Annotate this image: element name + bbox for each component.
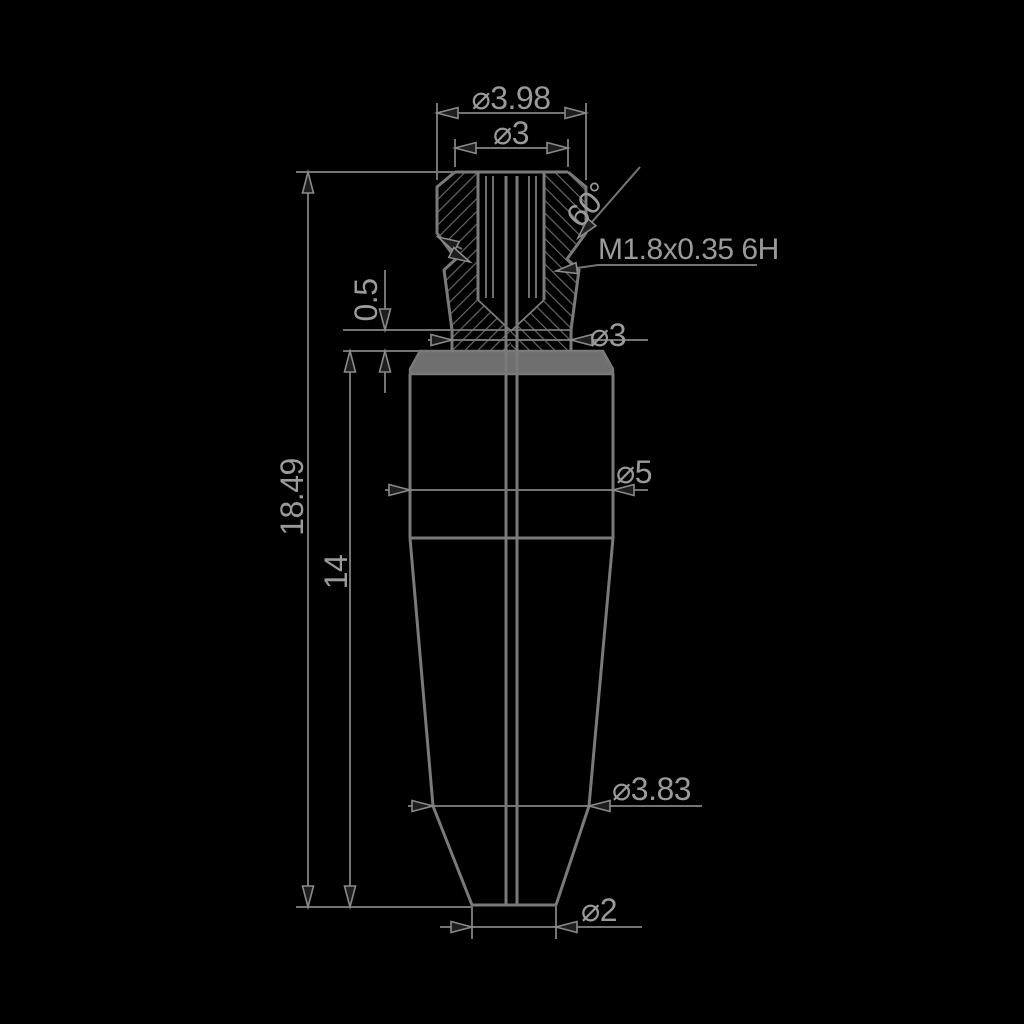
dim-label-cone-diameter: ⌀3.83 <box>612 771 691 807</box>
dim-label-thread-spec: M1.8x0.35 6H <box>598 233 779 266</box>
dim-label-body-diameter: ⌀5 <box>616 454 652 490</box>
arrowhead <box>412 801 433 812</box>
arrowhead <box>556 922 577 933</box>
cone-left-edge <box>433 806 472 905</box>
dim-thread-spec: M1.8x0.35 6H <box>555 233 779 276</box>
taper-left-edge <box>410 538 433 806</box>
dim-label-collar-thickness: 0.5 <box>348 279 384 322</box>
dim-label-top-outer-diameter: ⌀3.98 <box>471 80 550 116</box>
taper-right-edge <box>589 538 613 806</box>
arrowhead <box>565 108 586 119</box>
dim-label-overall-height: 18.49 <box>274 458 310 536</box>
arrowhead <box>431 335 452 346</box>
dim-body-height: 14 <box>318 351 356 907</box>
flange <box>410 351 613 374</box>
part-head-section <box>437 172 586 351</box>
dim-label-neck-diameter: ⌀3 <box>590 317 626 353</box>
arrowhead <box>303 172 314 193</box>
arrowhead <box>345 886 356 907</box>
arrowhead <box>589 801 610 812</box>
dim-cone-diameter: ⌀3.83 <box>408 771 702 812</box>
arrowhead <box>547 143 568 154</box>
arrowhead <box>437 108 458 119</box>
cone-right-edge <box>556 806 589 905</box>
arrowhead <box>303 886 314 907</box>
arrowhead <box>451 922 472 933</box>
nozzle-section-drawing: ⌀3.98 ⌀3 60° M1.8x0.35 6H 0.5 <box>0 0 1024 1024</box>
thread-bore-cavity <box>478 172 544 331</box>
arrowhead <box>571 335 592 346</box>
technical-drawing-canvas: ⌀3.98 ⌀3 60° M1.8x0.35 6H 0.5 <box>0 0 1024 1024</box>
dim-top-face-diameter: ⌀3 <box>455 115 568 167</box>
arrowhead <box>389 485 410 496</box>
arrowhead <box>345 351 356 372</box>
arrowhead <box>455 143 476 154</box>
dim-label-top-face-diameter: ⌀3 <box>493 115 529 151</box>
dim-label-body-height: 14 <box>318 555 354 590</box>
dim-label-tip-diameter: ⌀2 <box>581 892 617 928</box>
arrowhead <box>380 351 391 372</box>
